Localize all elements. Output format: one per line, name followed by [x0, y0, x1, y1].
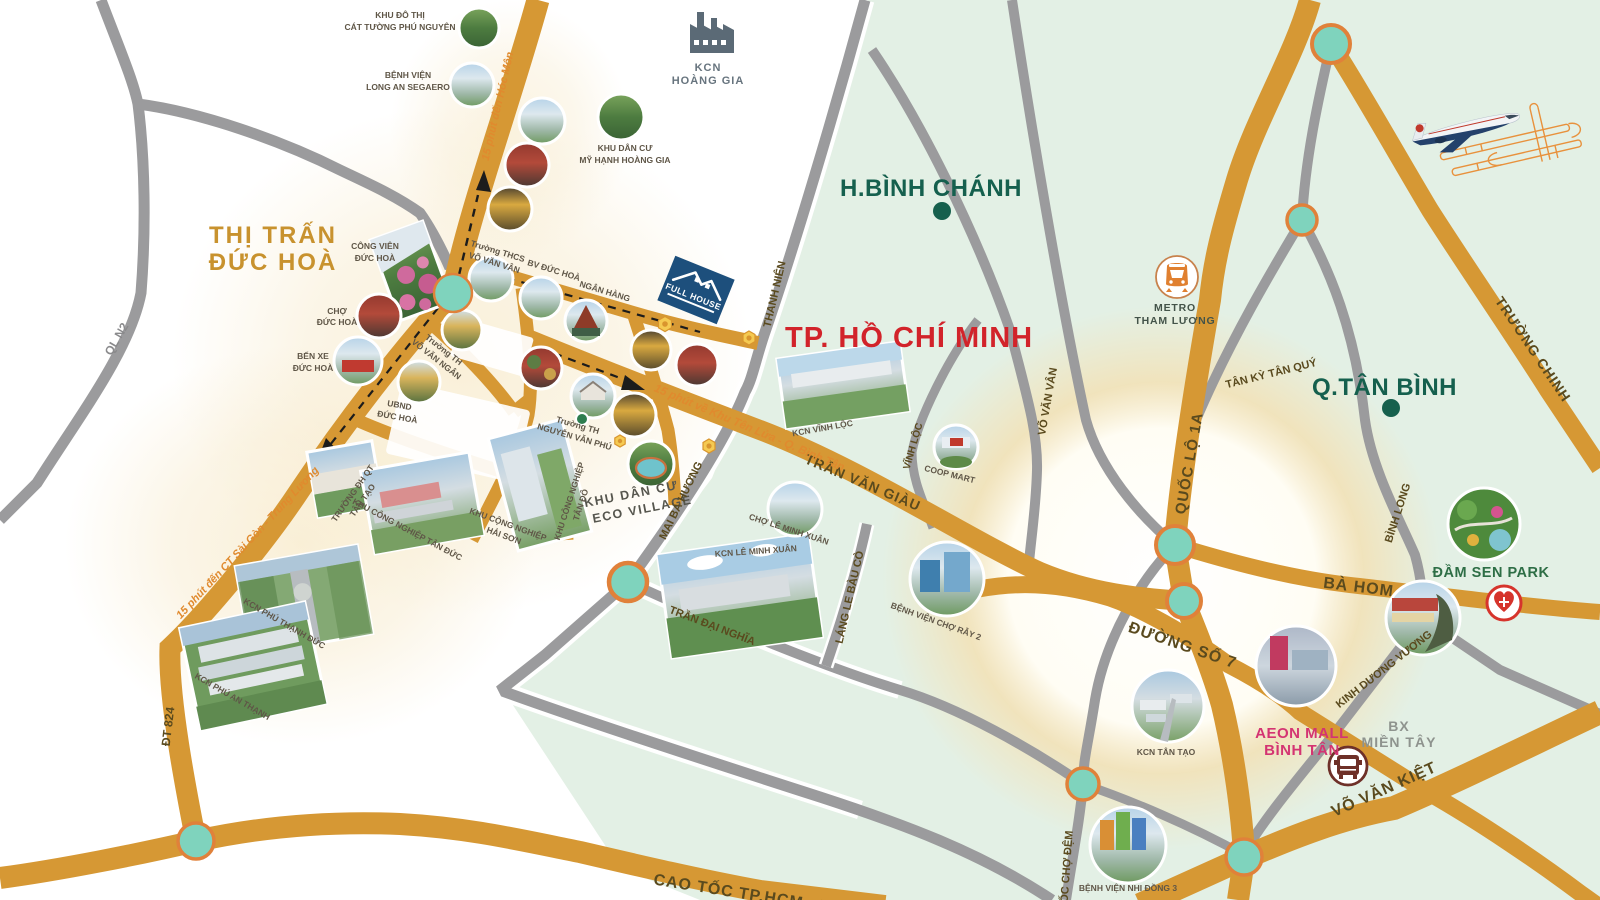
- svg-text:BẾN XE: BẾN XE: [297, 351, 329, 361]
- svg-text:CÔNG VIÊN: CÔNG VIÊN: [351, 240, 399, 251]
- svg-text:THỊ TRẤN: THỊ TRẤN: [209, 221, 337, 249]
- svg-text:H.BÌNH CHÁNH: H.BÌNH CHÁNH: [840, 174, 1022, 202]
- svg-text:CÁT TƯỜNG PHÚ NGUYÊN: CÁT TƯỜNG PHÚ NGUYÊN: [344, 21, 455, 32]
- svg-text:KCN TÂN TẠO: KCN TÂN TẠO: [1137, 746, 1196, 757]
- svg-text:BỆNH VIỆN: BỆNH VIỆN: [385, 69, 431, 80]
- svg-text:BÌNH TÂN: BÌNH TÂN: [1264, 741, 1340, 759]
- svg-text:HOÀNG GIA: HOÀNG GIA: [672, 74, 745, 87]
- svg-text:MIỀN TÂY: MIỀN TÂY: [1362, 733, 1437, 750]
- svg-text:CHỢ: CHỢ: [327, 306, 347, 316]
- svg-text:METRO: METRO: [1154, 302, 1196, 314]
- svg-text:TP. HỒ CHÍ MINH: TP. HỒ CHÍ MINH: [785, 320, 1033, 354]
- svg-text:THAM LƯƠNG: THAM LƯƠNG: [1134, 315, 1215, 327]
- svg-text:MỸ HẠNH HOÀNG GIA: MỸ HẠNH HOÀNG GIA: [579, 155, 670, 165]
- svg-text:KHU ĐÔ THỊ: KHU ĐÔ THỊ: [375, 9, 425, 20]
- svg-text:BỆNH VIỆN NHI ĐỒNG 3: BỆNH VIỆN NHI ĐỒNG 3: [1079, 882, 1178, 893]
- svg-text:ĐỨC HOÀ: ĐỨC HOÀ: [293, 362, 334, 373]
- svg-text:ĐỨC HOÀ: ĐỨC HOÀ: [355, 252, 396, 263]
- svg-text:LONG AN SEGAERO: LONG AN SEGAERO: [366, 82, 450, 92]
- svg-text:ĐẦM SEN PARK: ĐẦM SEN PARK: [1433, 564, 1550, 581]
- svg-text:KCN: KCN: [695, 62, 722, 74]
- svg-text:KHU DÂN CƯ: KHU DÂN CƯ: [598, 142, 654, 153]
- svg-text:ĐỨC HOÀ: ĐỨC HOÀ: [317, 316, 358, 327]
- svg-text:ĐỨC HOÀ: ĐỨC HOÀ: [209, 248, 338, 276]
- svg-text:AEON MALL: AEON MALL: [1255, 725, 1349, 742]
- svg-text:BX: BX: [1388, 718, 1409, 734]
- svg-text:Q.TÂN BÌNH: Q.TÂN BÌNH: [1312, 373, 1457, 401]
